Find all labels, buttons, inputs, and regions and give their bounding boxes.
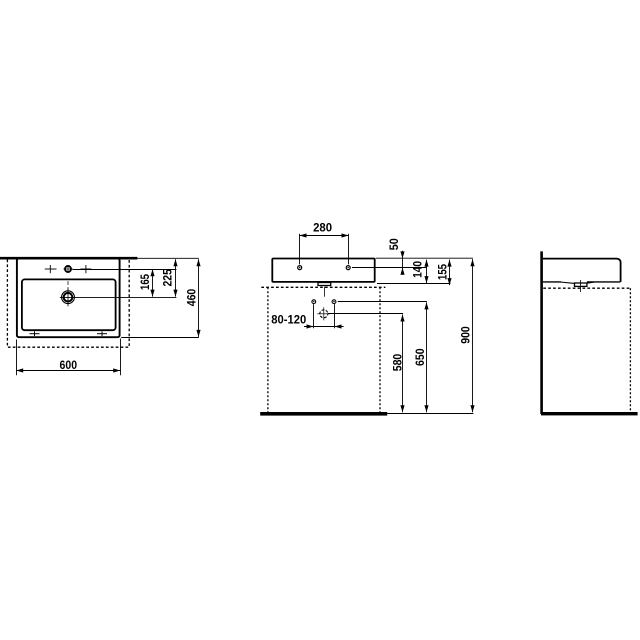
svg-text:280: 280: [313, 223, 332, 235]
svg-text:165: 165: [140, 273, 152, 290]
svg-text:460: 460: [186, 289, 198, 307]
svg-text:600: 600: [60, 360, 78, 372]
svg-text:225: 225: [162, 268, 174, 286]
svg-text:140: 140: [413, 261, 425, 278]
svg-text:80-120: 80-120: [271, 315, 306, 327]
svg-text:650: 650: [415, 348, 427, 366]
svg-text:580: 580: [392, 354, 404, 372]
svg-text:900: 900: [461, 326, 473, 344]
svg-text:50: 50: [389, 238, 401, 250]
svg-text:155: 155: [438, 263, 450, 280]
